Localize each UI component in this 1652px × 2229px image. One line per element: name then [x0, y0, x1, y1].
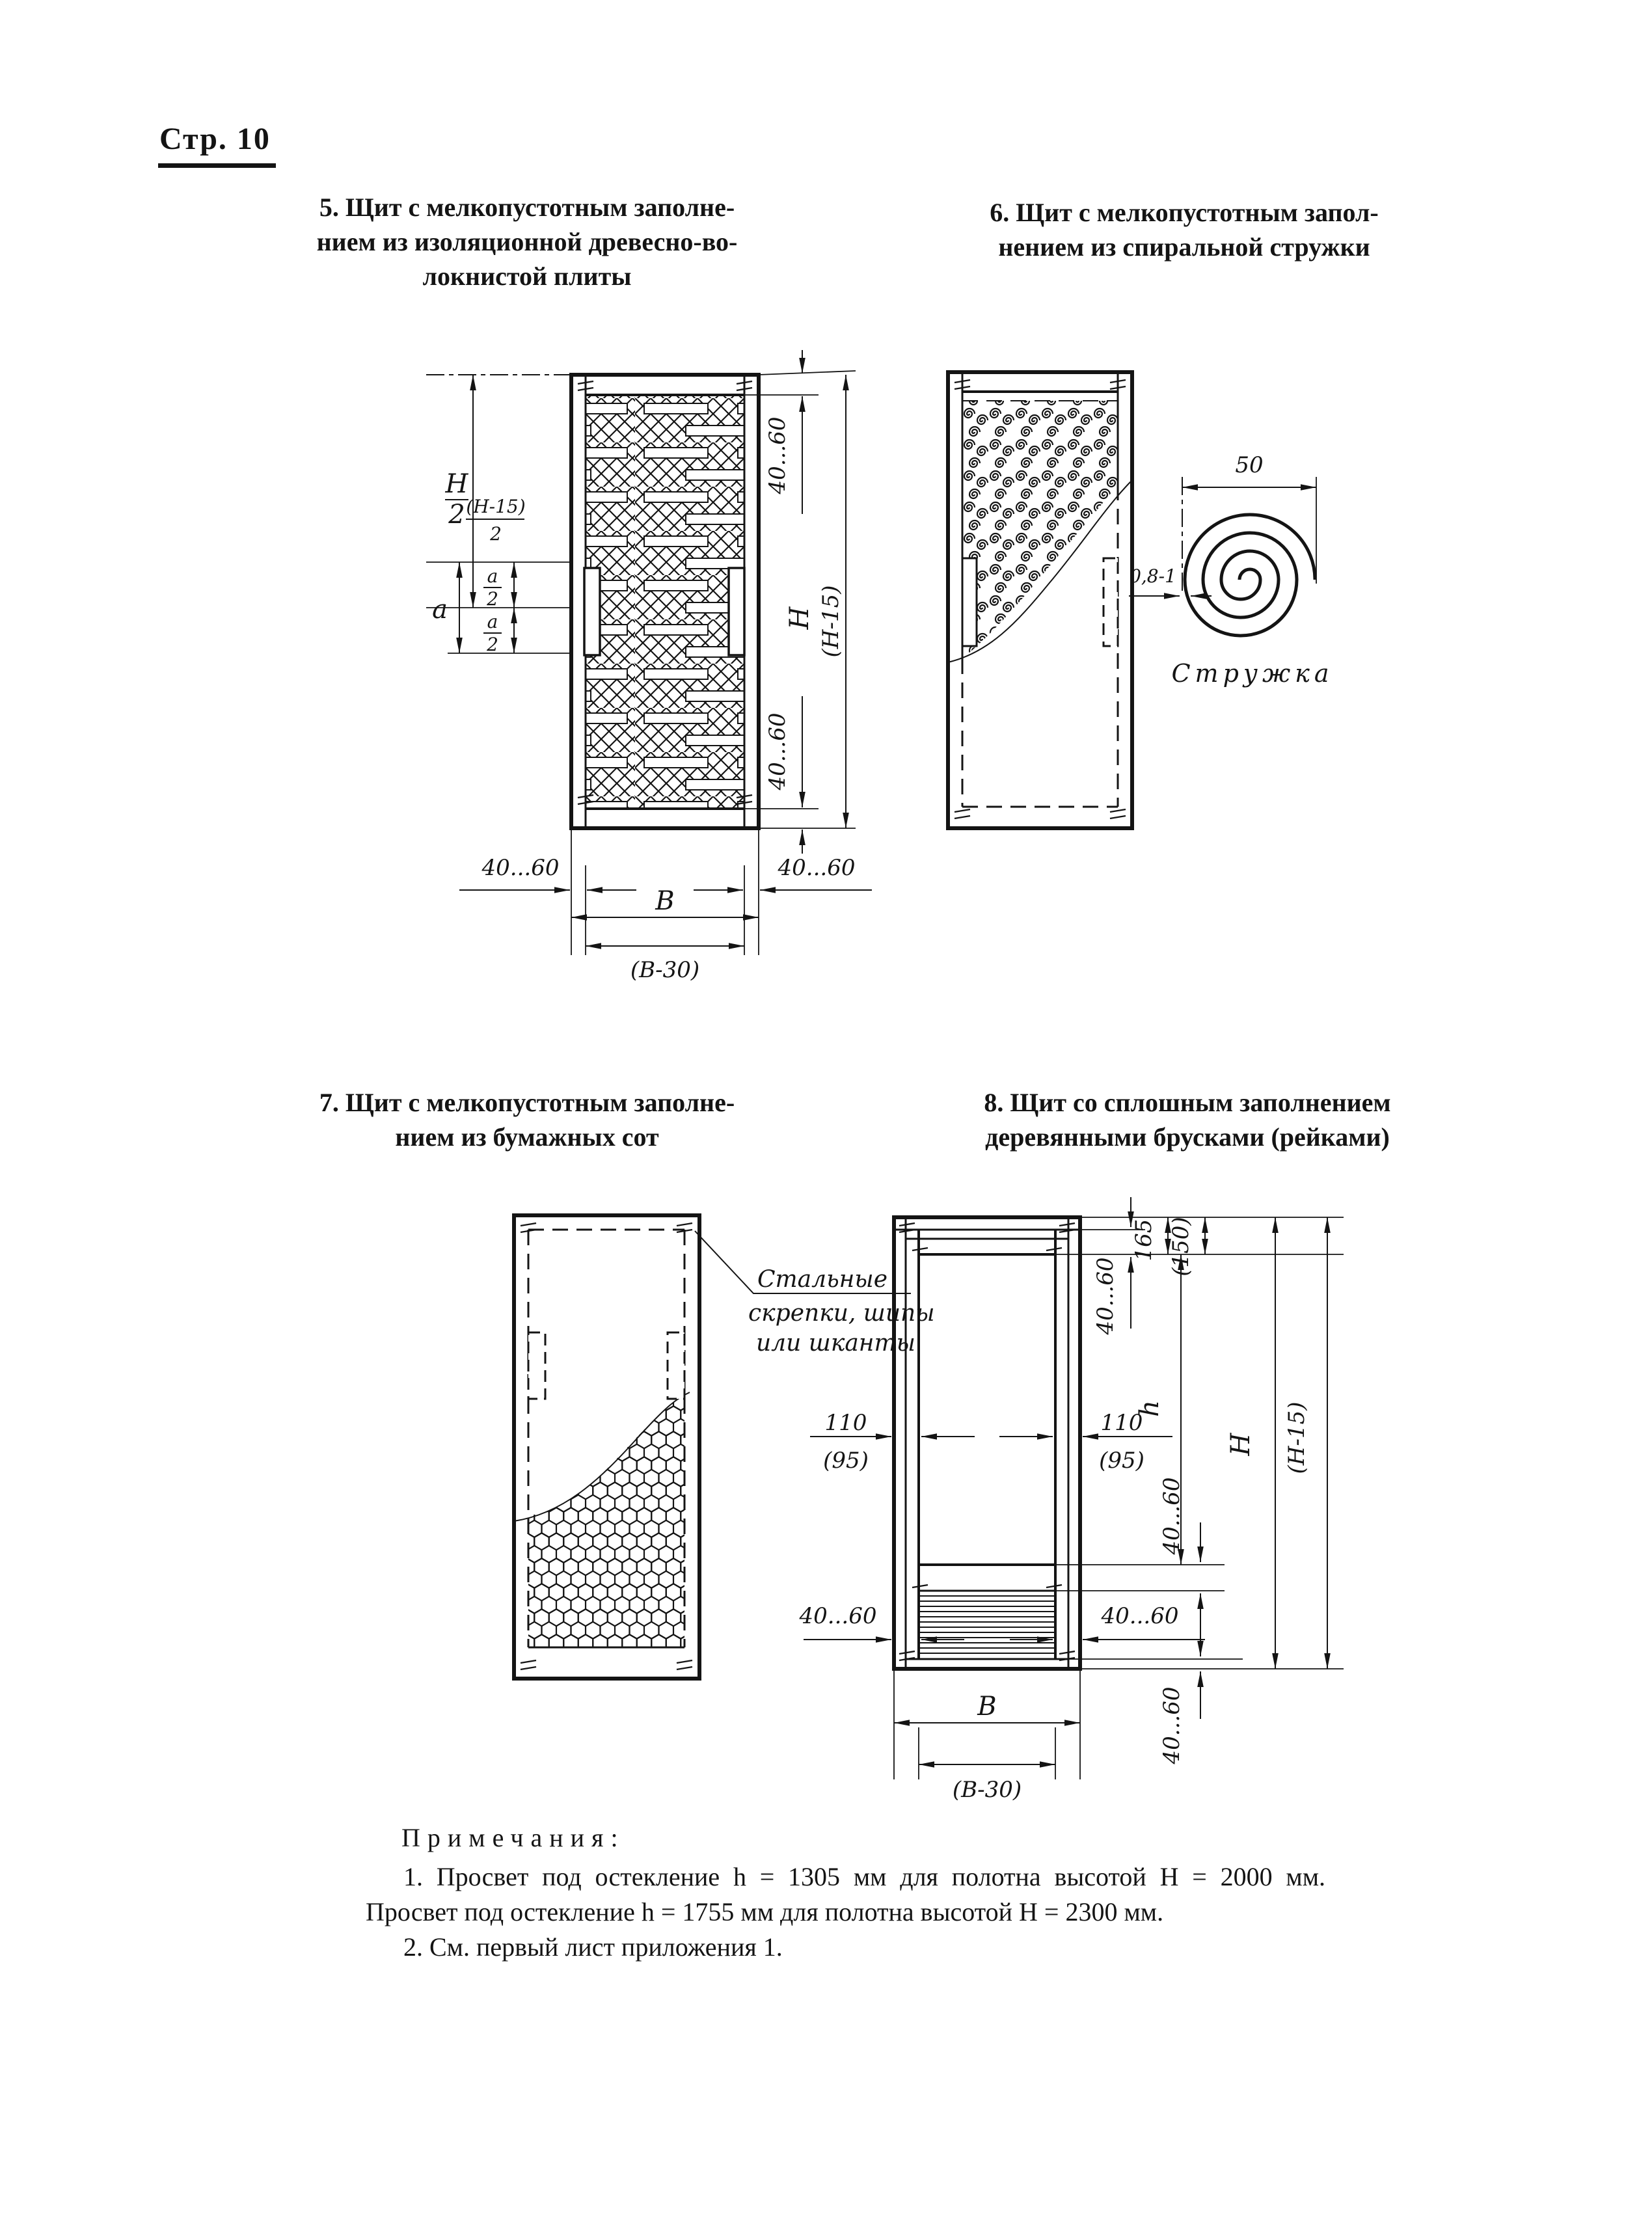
- dim-label-lath-stile-left: 40...60: [799, 1603, 877, 1629]
- fig7-callout-line: скрепки, шипы: [748, 1300, 935, 1327]
- dim-label-width: В: [655, 886, 674, 916]
- dim-label: (95): [823, 1448, 869, 1474]
- fig7-callout-line: Стальные: [757, 1266, 887, 1293]
- notes-block: Примечания: 1. Просвет под остекление h …: [366, 1820, 1325, 1965]
- fig5-dim-a2-bottom: a 2: [483, 611, 502, 655]
- dim-label: H: [445, 469, 469, 499]
- fig7-honeycomb-fill: [528, 1395, 684, 1647]
- figure-5-drawing: H 2 (H-15) 2 a a 2 a 2: [426, 350, 872, 983]
- dim-label-width: В: [977, 1692, 996, 1722]
- fig6-lock-block-left: [962, 558, 977, 646]
- fig8-joint-ticks: [899, 1223, 1075, 1660]
- dim-label-bottom-rail: 40...60: [765, 713, 791, 791]
- notes-heading: Примечания:: [401, 1820, 1325, 1856]
- fig5-dim-half-height: H 2 (H-15) 2: [445, 469, 526, 545]
- shaving-caption: Стружка: [1171, 659, 1333, 688]
- fig8-wood-laths: [919, 1596, 1055, 1653]
- fig6-shaving-detail: 50 0,8-1 Стружка: [1129, 452, 1334, 688]
- dim-label-bottom-rail-bar: 40...60: [1159, 1687, 1185, 1765]
- dim-label: 2: [486, 634, 498, 655]
- fig7-lock-block-left-hidden: [528, 1332, 545, 1399]
- fig8-dim-stile-right: 110 (95): [999, 1410, 1172, 1474]
- dim-label-stile-right: 40...60: [778, 855, 856, 881]
- dim-label-top-bar: 40...60: [1092, 1258, 1118, 1336]
- dim-label-height-alt: (H-15): [1284, 1402, 1310, 1474]
- fig6-spiral-shaving: [1185, 515, 1315, 636]
- figure-6-drawing: 50 0,8-1 Стружка: [948, 372, 1334, 828]
- dim-label: (95): [1099, 1448, 1144, 1474]
- fig5-insulation-fill: [586, 395, 744, 809]
- fig5-dim-a2-top: a 2: [483, 565, 502, 610]
- fig6-shavings-fill: [962, 401, 1118, 658]
- dim-label: a: [487, 565, 498, 587]
- dim-label-height: H: [1226, 1432, 1256, 1456]
- dim-label-top-rail: 165: [1131, 1219, 1157, 1262]
- dim-label-width-alt: (В-30): [630, 957, 699, 983]
- dim-label: 2: [448, 500, 465, 530]
- dim-label-width-alt: (В-30): [953, 1777, 1022, 1803]
- dim-label-glazing-height: h: [1135, 1400, 1165, 1417]
- dim-label: (H-15): [466, 496, 525, 517]
- fig7-callout-line: или шканты: [756, 1330, 915, 1357]
- dim-label-stile-left: 40...60: [481, 855, 560, 881]
- dim-label-mid-bar: 40...60: [1159, 1478, 1185, 1556]
- fig5-lock-block-left: [584, 568, 600, 655]
- dim-label-top-rail: 40...60: [765, 417, 791, 495]
- note-item: 2. См. первый лист приложения 1.: [366, 1930, 1325, 1965]
- document-page: Стр. 10 5. Щит с мелкопустотным заполне-…: [0, 0, 1652, 2229]
- dim-label: 2: [489, 523, 502, 545]
- dim-label-lath-stile-right: 40...60: [1101, 1603, 1179, 1629]
- dim-label: 2: [486, 588, 498, 610]
- dim-label: 110: [825, 1410, 867, 1436]
- dim-label-shaving-width: 50: [1235, 452, 1263, 478]
- fig6-lock-block-right-hidden: [1104, 558, 1118, 646]
- dim-label-height-alt: (H-15): [818, 586, 844, 658]
- dim-label: a: [487, 611, 498, 632]
- fig5-ext-right-top: [759, 371, 856, 375]
- fig5-lock-block-right: [729, 568, 744, 655]
- fig7-lock-block-right-hidden: [668, 1332, 684, 1399]
- dim-label-height: H: [785, 606, 815, 630]
- note-item: 1. Просвет под остекление h = 1305 мм дл…: [366, 1859, 1325, 1930]
- dim-label-shaving-thickness: 0,8-1: [1130, 565, 1176, 587]
- dim-label-a: a: [432, 595, 448, 625]
